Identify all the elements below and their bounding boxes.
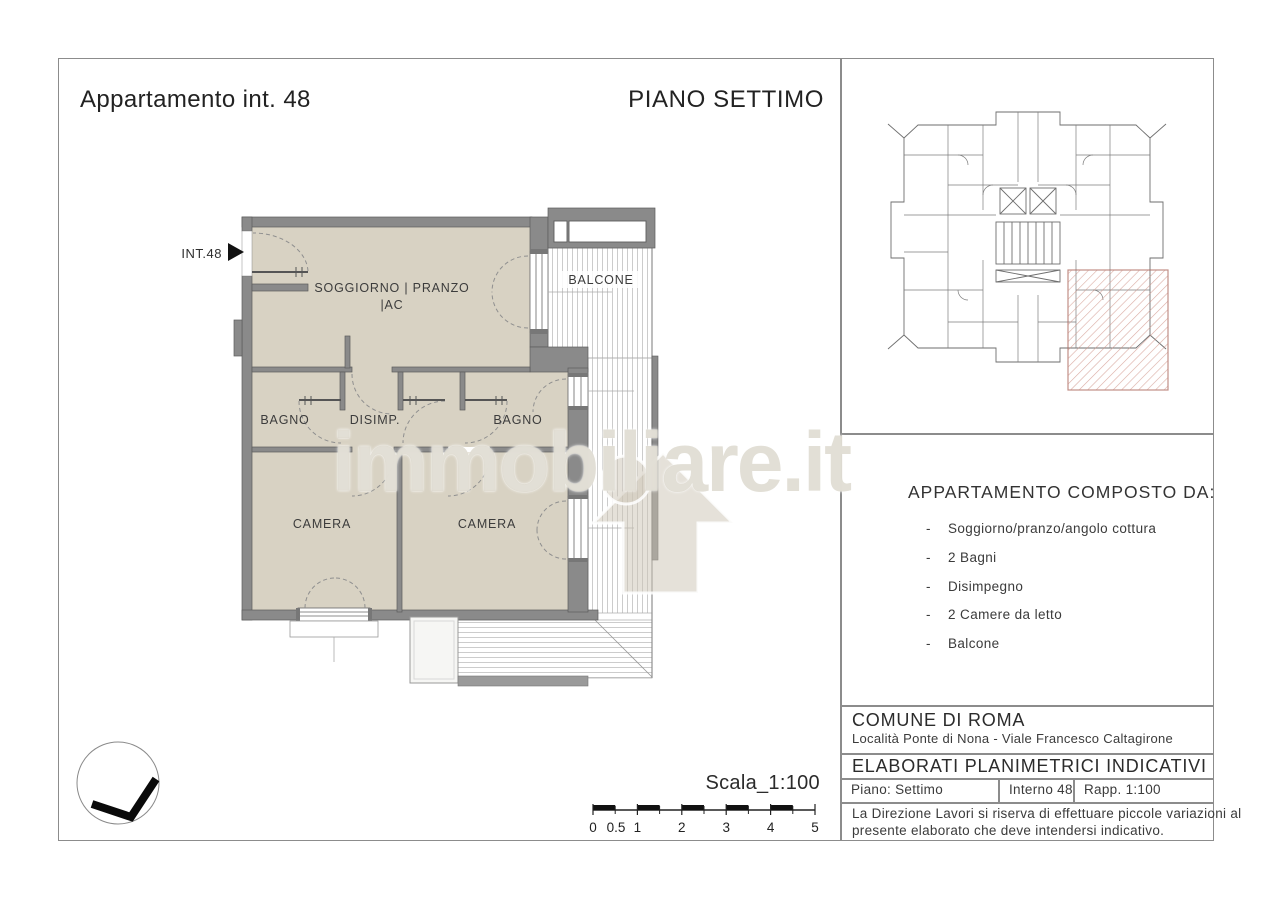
list-item-label: Balcone bbox=[948, 636, 1000, 651]
list-item-label: Soggiorno/pranzo/angolo cottura bbox=[948, 521, 1156, 536]
scale-tick-labels: 0 0.5 1 2 3 4 5 bbox=[589, 820, 819, 835]
titleblock-line bbox=[840, 705, 1214, 707]
titleblock-line bbox=[840, 802, 1214, 804]
scale-tick: 1 bbox=[634, 820, 642, 835]
ratio-cell: Rapp. 1:100 bbox=[1073, 778, 1214, 802]
north-needle-icon bbox=[92, 779, 156, 817]
municipality: COMUNE DI ROMA bbox=[852, 710, 1025, 731]
sidebar-horizontal-divider bbox=[840, 433, 1214, 435]
label-soggiorno-ac: |AC bbox=[380, 298, 403, 312]
scale-tick: 0 bbox=[589, 820, 597, 835]
drawing-sheet: Appartamento int. 48 PIANO SETTIMO bbox=[0, 0, 1273, 900]
floor-cell: Piano: Settimo bbox=[840, 778, 998, 802]
list-item: -Balcone bbox=[926, 636, 1000, 651]
composition-heading: APPARTAMENTO COMPOSTO DA: bbox=[908, 482, 1215, 503]
scale-tick: 3 bbox=[722, 820, 730, 835]
label-disimpegno: DISIMP. bbox=[350, 413, 401, 427]
key-plan bbox=[878, 90, 1178, 398]
disclaimer-line1: La Direzione Lavori si riserva di effett… bbox=[852, 806, 1241, 821]
unit-cell: Interno 48 bbox=[998, 778, 1073, 802]
building-core bbox=[996, 188, 1060, 282]
label-soggiorno: SOGGIORNO | PRANZO bbox=[314, 281, 469, 295]
titleblock-line bbox=[840, 753, 1214, 755]
label-camera-right: CAMERA bbox=[458, 517, 516, 531]
label-bagno-left: BAGNO bbox=[260, 413, 309, 427]
list-item: -2 Camere da letto bbox=[926, 607, 1062, 622]
entrance-label: INT.48 bbox=[181, 246, 222, 261]
bullet-dash: - bbox=[926, 636, 948, 651]
scale-bar: 0 0.5 1 2 3 4 5 bbox=[585, 762, 830, 842]
entrance-arrow-icon bbox=[228, 243, 244, 261]
list-item-label: 2 Bagni bbox=[948, 550, 997, 565]
sidebar-divider-line bbox=[840, 58, 842, 841]
disclaimer-line2: presente elaborato che deve intendersi i… bbox=[852, 823, 1164, 838]
bullet-dash: - bbox=[926, 521, 948, 536]
list-item: -Disimpegno bbox=[926, 579, 1023, 594]
list-item-label: 2 Camere da letto bbox=[948, 607, 1062, 622]
list-item: -Soggiorno/pranzo/angolo cottura bbox=[926, 521, 1156, 536]
list-item-label: Disimpegno bbox=[948, 579, 1023, 594]
label-balcone: BALCONE bbox=[568, 273, 633, 287]
apartment-title: Appartamento int. 48 bbox=[80, 86, 311, 114]
floor-plan: INT.48 SOGGIORNO | PRANZO |AC BALCONE BA… bbox=[170, 190, 690, 710]
scale-tick: 4 bbox=[767, 820, 775, 835]
unit-highlight bbox=[1068, 270, 1168, 390]
list-item: -2 Bagni bbox=[926, 550, 997, 565]
bullet-dash: - bbox=[926, 607, 948, 622]
bullet-dash: - bbox=[926, 579, 948, 594]
scale-tick: 2 bbox=[678, 820, 686, 835]
bullet-dash: - bbox=[926, 550, 948, 565]
floor-title: PIANO SETTIMO bbox=[614, 86, 824, 114]
label-bagno-right: BAGNO bbox=[493, 413, 542, 427]
document-type: ELABORATI PLANIMETRICI INDICATIVI bbox=[852, 756, 1207, 777]
location: Località Ponte di Nona - Viale Francesco… bbox=[852, 731, 1173, 746]
orientation-symbol bbox=[68, 728, 178, 838]
label-camera-left: CAMERA bbox=[293, 517, 351, 531]
entrance-marker: INT.48 bbox=[181, 243, 244, 261]
scale-tick: 0.5 bbox=[607, 820, 626, 835]
scale-tick: 5 bbox=[811, 820, 819, 835]
